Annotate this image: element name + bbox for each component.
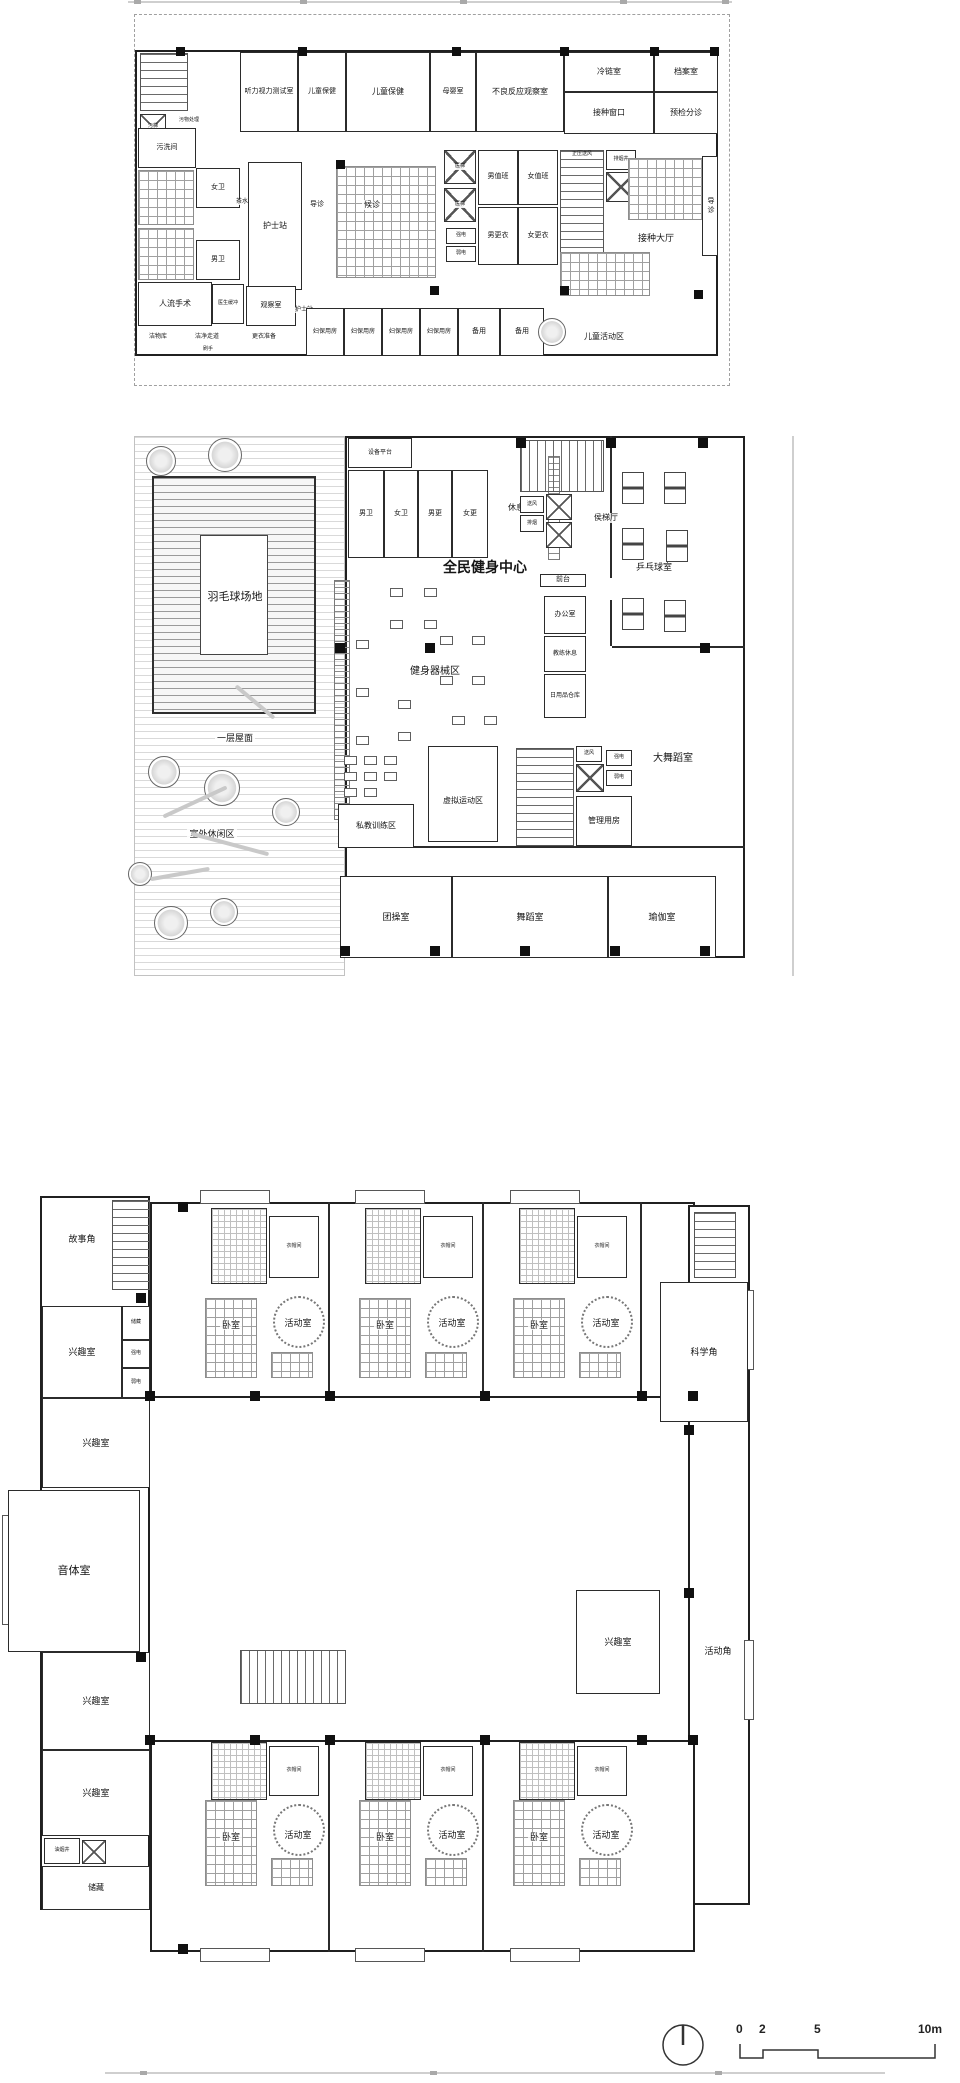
column: [688, 1735, 698, 1745]
toilet-stalls: [138, 228, 194, 280]
elevator-shaft: 医梯: [444, 188, 476, 222]
room: 强电: [122, 1340, 150, 1368]
room: 排烟: [520, 515, 544, 532]
room: 日用品仓库: [544, 674, 586, 718]
area-label: 卧室: [207, 1830, 255, 1844]
room: 男更衣: [478, 207, 518, 265]
column: [145, 1735, 155, 1745]
area-label: 活动室: [267, 1828, 329, 1842]
washroom-fixtures: [365, 1208, 421, 1284]
area-label: 候诊: [352, 198, 392, 212]
pingpong-table: [622, 598, 644, 630]
room: 妇保用房: [344, 308, 382, 356]
column: [700, 946, 710, 956]
column: [325, 1391, 335, 1401]
area-label: 虚拟运动区: [430, 794, 496, 808]
adjacent-sheet-mark: [430, 2071, 437, 2075]
column: [136, 1652, 146, 1662]
tables: [425, 1352, 467, 1378]
room: 男更: [418, 470, 452, 558]
area-label: 卧室: [361, 1830, 409, 1844]
tree: [154, 906, 188, 940]
room: 女更衣: [518, 207, 558, 265]
column: [684, 1588, 694, 1598]
room: 档案室: [654, 52, 718, 92]
elevator-shaft: [576, 764, 604, 792]
room: 兴趣室: [576, 1590, 660, 1694]
room: 冷链室: [564, 52, 654, 92]
map-footer: 0 2 5 10m: [655, 2016, 955, 2078]
gym-equipment: [440, 636, 453, 645]
room: 儿童保健: [298, 52, 346, 132]
column: [688, 1391, 698, 1401]
gym-equipment: [472, 636, 485, 645]
room: 前台: [540, 574, 586, 587]
bench-row: [334, 580, 350, 820]
room: 强电: [446, 228, 476, 244]
scale-bar: [740, 2044, 935, 2058]
room: 女值班: [518, 150, 558, 205]
adjacent-sheet-edge: [792, 436, 794, 976]
column: [178, 1944, 188, 1954]
stairs: [112, 1200, 150, 1290]
tree: [210, 898, 238, 926]
adjacent-sheet-mark: [300, 0, 307, 4]
column: [684, 1425, 694, 1435]
area-label: 故事角: [52, 1230, 112, 1248]
room: 衣帽间: [577, 1746, 627, 1796]
bay-window: [510, 1190, 580, 1204]
tables: [579, 1352, 621, 1378]
column: [430, 946, 440, 956]
washroom-fixtures: [365, 1742, 421, 1800]
stairs: [240, 1650, 346, 1704]
room: 男卫: [348, 470, 384, 558]
beds: [359, 1298, 411, 1378]
room: 教练休息: [544, 636, 586, 672]
gym-equipment: [344, 756, 357, 765]
tree: [128, 862, 152, 886]
pingpong-table: [666, 530, 688, 562]
area-label: 乒乓球室: [622, 560, 686, 574]
stairs: [516, 748, 574, 846]
adjacent-sheet-edge: [128, 1, 732, 3]
gym-equipment: [440, 676, 453, 685]
bay-window: [355, 1948, 425, 1962]
area-label: 活动室: [575, 1828, 637, 1842]
area-label: 健身器械区: [392, 664, 478, 680]
column: [560, 286, 569, 295]
room: 儿童保健: [346, 52, 430, 132]
area-label: 活动室: [267, 1316, 329, 1330]
room: 女更: [452, 470, 488, 558]
elevator-shaft: 医梯: [444, 150, 476, 184]
area-label: 侯梯厅: [580, 510, 632, 526]
column: [336, 160, 345, 169]
room: 设备平台: [348, 438, 412, 468]
tree: [146, 446, 176, 476]
room: 兴趣室: [42, 1398, 150, 1488]
area-label: 刷手: [192, 344, 224, 355]
room: 衣帽间: [423, 1746, 473, 1796]
gym-equipment: [472, 676, 485, 685]
room: 兴趣室: [42, 1652, 150, 1750]
room: 医生缓冲: [212, 284, 244, 324]
area-label: 活动室: [421, 1316, 483, 1330]
area-label: 卧室: [515, 1318, 563, 1332]
bay-window: [355, 1190, 425, 1204]
area-label: 儿童活动区: [562, 330, 646, 344]
gym-equipment: [364, 788, 377, 797]
room: 强电: [606, 750, 632, 766]
column: [610, 946, 620, 956]
area-label: 卧室: [207, 1318, 255, 1332]
room: 男值班: [478, 150, 518, 205]
column: [136, 1293, 146, 1303]
area-label: 污物处理: [168, 114, 210, 128]
scale-tick-10m: 10m: [918, 2022, 942, 2036]
tree: [148, 756, 180, 788]
area-label: 一层屋面: [200, 730, 270, 746]
room: 衣帽间: [423, 1216, 473, 1278]
column: [694, 290, 703, 299]
room: 储藏: [42, 1866, 150, 1910]
room: 护士站: [248, 162, 302, 290]
gym-equipment: [344, 788, 357, 797]
column: [325, 1735, 335, 1745]
column: [606, 438, 616, 448]
tables: [579, 1858, 621, 1886]
beds: [513, 1298, 565, 1378]
column: [425, 643, 435, 653]
room: 舞蹈室: [452, 876, 608, 958]
column: [145, 1391, 155, 1401]
adjacent-sheet-mark: [460, 0, 467, 4]
beds: [205, 1298, 257, 1378]
gym-equipment: [390, 620, 403, 629]
area-label: 导诊: [302, 198, 332, 212]
gym-equipment: [484, 716, 497, 725]
tree: [272, 798, 300, 826]
gym-equipment: [424, 588, 437, 597]
gym-equipment: [344, 772, 357, 781]
stairs: [520, 440, 604, 492]
wall: [482, 1202, 484, 1398]
adjacent-sheet-mark: [140, 2071, 147, 2075]
room: 私教训练区: [338, 804, 414, 848]
floor-plans-sheet: 污梯污物处理听力视力测试室儿童保健儿童保健母婴室不良反应观察室冷链室接种窗口档案…: [0, 0, 960, 2079]
wall: [610, 436, 612, 578]
area-label: 大舞蹈室: [636, 750, 710, 768]
gym-equipment: [356, 640, 369, 649]
bay-window: [200, 1190, 270, 1204]
area-label: 接种大厅: [618, 230, 694, 246]
washroom-fixtures: [211, 1208, 267, 1284]
area-label: 洁物库: [138, 330, 178, 344]
north-arrow-and-scale-bar: [655, 2016, 955, 2078]
elevator-shaft: [546, 494, 572, 520]
column: [650, 47, 659, 56]
wall: [482, 1740, 484, 1952]
column: [178, 1202, 188, 1212]
room: 人流手术: [138, 282, 212, 326]
elevator-shaft: [546, 522, 572, 548]
room: 接种窗口: [564, 92, 654, 134]
area-label: 正压送风: [558, 150, 606, 159]
column: [298, 47, 307, 56]
room: 兴趣室: [42, 1750, 150, 1836]
area-label: 活动室: [421, 1828, 483, 1842]
column: [176, 47, 185, 56]
area-label: 羽毛球场地: [190, 588, 280, 606]
washroom-fixtures: [211, 1742, 267, 1800]
room: 母婴室: [430, 52, 476, 132]
stairs: [560, 150, 604, 258]
gym-equipment: [356, 736, 369, 745]
title-label: 全民健身中心: [420, 556, 550, 578]
wall: [328, 1202, 330, 1398]
gym-equipment: [424, 620, 437, 629]
column: [710, 47, 719, 56]
room: 妇保用房: [382, 308, 420, 356]
tables: [271, 1352, 313, 1378]
wall: [640, 1202, 642, 1398]
gym-equipment: [384, 756, 397, 765]
room: 音体室: [8, 1490, 140, 1652]
room: 女卫: [384, 470, 418, 558]
area-label: 活动角: [688, 1642, 748, 1660]
bay-window: [200, 1948, 270, 1962]
adjacent-sheet-mark: [134, 0, 141, 4]
room: 衣帽间: [269, 1216, 319, 1278]
tables: [425, 1858, 467, 1886]
pingpong-table: [664, 472, 686, 504]
column: [698, 438, 708, 448]
elevator-shaft: [82, 1840, 106, 1864]
gym-equipment: [452, 716, 465, 725]
stairs: [140, 53, 188, 111]
room: 备用: [458, 308, 500, 356]
pingpong-table: [622, 472, 644, 504]
column: [430, 286, 439, 295]
room: 送风: [576, 746, 602, 762]
area-label: 活动室: [575, 1316, 637, 1330]
room: 污洗间: [138, 128, 196, 168]
adjacent-sheet-mark: [620, 0, 627, 4]
area-label: 卧室: [361, 1318, 409, 1332]
room: 妇保用房: [420, 308, 458, 356]
column: [560, 47, 569, 56]
gym-equipment: [356, 688, 369, 697]
toilet-stalls: [138, 170, 194, 225]
waiting-seats: [336, 166, 436, 278]
column: [340, 946, 350, 956]
gym-equipment: [384, 772, 397, 781]
room: 办公室: [544, 596, 586, 634]
column: [520, 946, 530, 956]
wall: [612, 646, 745, 648]
washroom-fixtures: [519, 1208, 575, 1284]
scale-tick-5: 5: [814, 2022, 821, 2036]
room: 不良反应观察室: [476, 52, 564, 132]
area-label: 洁净走道: [180, 330, 234, 344]
room: 储藏: [122, 1306, 150, 1340]
room: 弱电: [606, 770, 632, 786]
room: 兴趣室: [42, 1306, 122, 1398]
area-label: 卧室: [515, 1830, 563, 1844]
gym-equipment: [390, 588, 403, 597]
room: 听力视力测试室: [240, 52, 298, 132]
tables: [271, 1858, 313, 1886]
guide-desk: 导诊: [702, 156, 718, 256]
gym-equipment: [398, 700, 411, 709]
room: 科学角: [660, 1282, 748, 1422]
room: 衣帽间: [577, 1216, 627, 1278]
column: [516, 438, 526, 448]
wall: [610, 600, 612, 646]
area-label: 更衣准备: [236, 330, 292, 344]
room: 妇保用房: [306, 308, 344, 356]
gym-equipment: [364, 756, 377, 765]
column: [480, 1391, 490, 1401]
room: 衣帽间: [269, 1746, 319, 1796]
wall: [328, 1740, 330, 1952]
bay-window: [510, 1948, 580, 1962]
room: 男卫: [196, 240, 240, 280]
column: [250, 1735, 260, 1745]
room: 预检分诊: [654, 92, 718, 134]
column: [480, 1735, 490, 1745]
tree: [208, 438, 242, 472]
column: [637, 1735, 647, 1745]
adjacent-sheet-mark: [722, 0, 729, 4]
pingpong-table: [622, 528, 644, 560]
column: [637, 1391, 647, 1401]
scale-tick-0: 0: [736, 2022, 743, 2036]
column: [700, 643, 710, 653]
column: [250, 1391, 260, 1401]
column: [335, 643, 345, 653]
column: [452, 47, 461, 56]
hall-seats: [560, 252, 650, 296]
gym-equipment: [364, 772, 377, 781]
washroom-fixtures: [519, 1742, 575, 1800]
room: 管理用房: [576, 796, 632, 846]
stairs: [694, 1212, 736, 1278]
gym-equipment: [398, 732, 411, 741]
scale-tick-2: 2: [759, 2022, 766, 2036]
pingpong-table: [664, 600, 686, 632]
room: 送风: [520, 496, 544, 513]
room: 弱电: [446, 246, 476, 262]
room: 油烟井: [44, 1838, 80, 1864]
